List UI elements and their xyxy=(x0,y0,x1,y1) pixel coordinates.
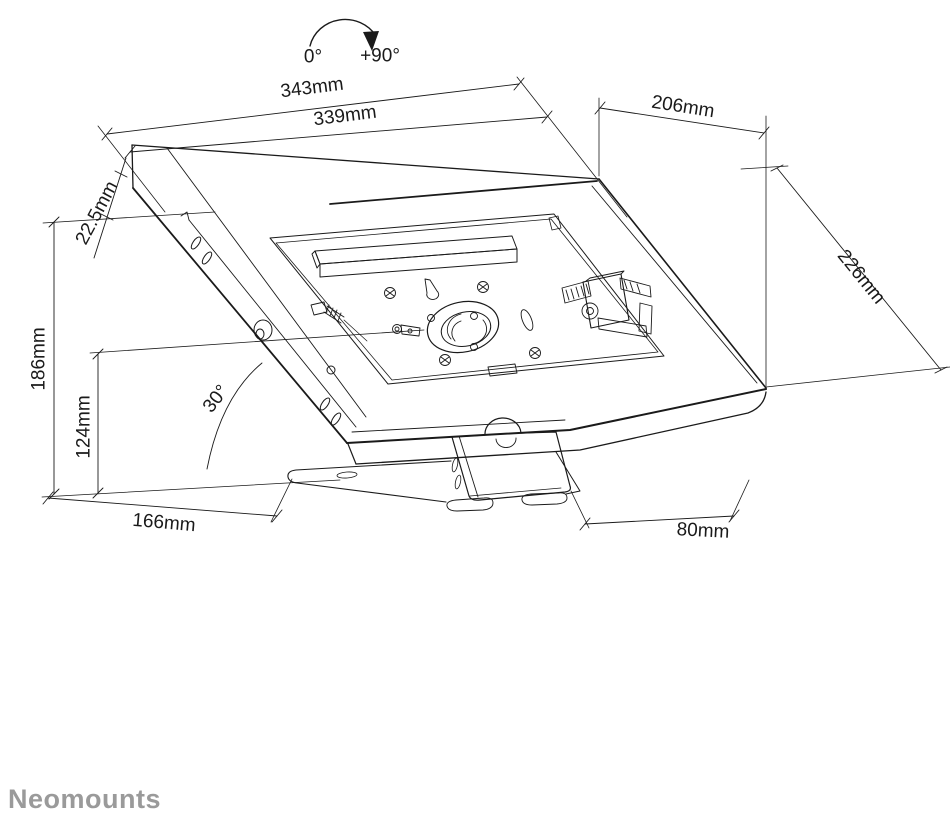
brand-logo: Neomounts xyxy=(8,784,161,814)
tablet-stand-line-drawing xyxy=(0,0,950,814)
dim-label-total-height: 186mm xyxy=(30,327,49,390)
dim-label-pivot-height: 124mm xyxy=(75,395,94,458)
dimension-lines xyxy=(42,77,950,530)
latch-clamp xyxy=(562,271,652,337)
technical-drawing-page: 0° +90° 343mm 339mm 206mm 22.5mm 226mm 1… xyxy=(0,0,950,814)
foot-pad xyxy=(522,493,567,505)
security-screw-icon xyxy=(311,302,367,341)
dim-label-base-depth: 166mm xyxy=(132,511,197,535)
cable-bar xyxy=(312,236,517,277)
support-bracket xyxy=(447,418,571,511)
rotation-end-label: +90° xyxy=(360,47,400,66)
dim-label-foot-depth: 80mm xyxy=(676,520,730,542)
enclosure-outline xyxy=(132,145,766,464)
rotation-start-label: 0° xyxy=(304,48,322,67)
plate-slots xyxy=(311,279,535,341)
rotation-hub xyxy=(423,295,504,359)
